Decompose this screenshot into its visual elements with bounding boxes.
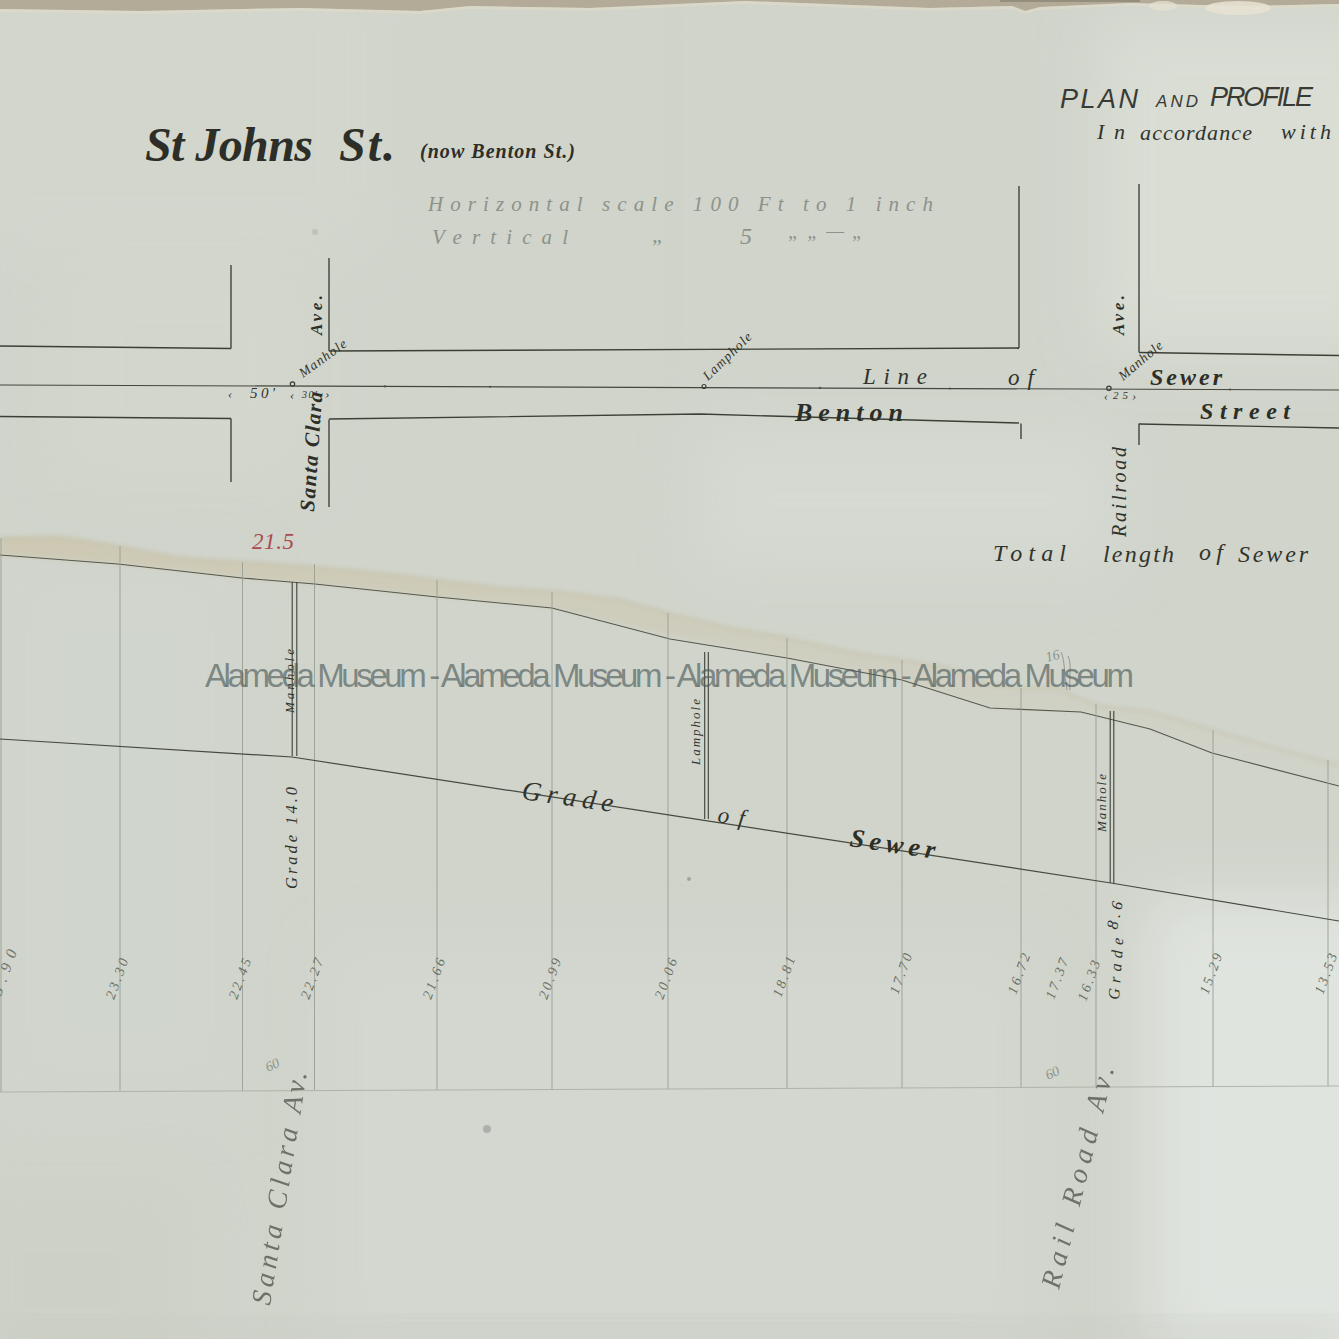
svg-text:(now Benton St.): (now Benton St.) <box>420 140 575 163</box>
svg-text:30': 30' <box>301 389 318 400</box>
svg-text:›: › <box>325 386 329 401</box>
svg-text:Sewer: Sewer <box>1238 541 1309 567</box>
svg-text:›: › <box>1132 389 1136 403</box>
svg-text:AND: AND <box>1155 92 1198 111</box>
svg-text:length: length <box>1103 541 1174 567</box>
svg-text:21.5: 21.5 <box>252 529 294 554</box>
svg-text:St Johns: St Johns <box>145 118 313 171</box>
svg-text:„ „ — „: „ „ — „ <box>788 220 863 242</box>
svg-text:„: „ <box>652 222 664 247</box>
svg-text:accordance: accordance <box>1140 120 1252 145</box>
svg-text:Sewer: Sewer <box>1150 364 1223 390</box>
svg-text:St.: St. <box>339 118 395 171</box>
svg-text:‹: ‹ <box>228 386 232 401</box>
svg-text:PLAN: PLAN <box>1060 84 1139 114</box>
svg-text:50': 50' <box>250 385 276 401</box>
svg-text:Alameda Museum - Alameda Museu: Alameda Museum - Alameda Museum - Alamed… <box>205 657 1134 694</box>
svg-text:5: 5 <box>740 223 752 249</box>
svg-text:‹: ‹ <box>1104 389 1108 403</box>
svg-text:Grade 14.0: Grade 14.0 <box>282 786 301 889</box>
svg-text:Lamphole: Lamphole <box>688 699 703 766</box>
svg-text:‹: ‹ <box>290 387 294 402</box>
svg-text:PROFILE: PROFILE <box>1210 82 1314 112</box>
